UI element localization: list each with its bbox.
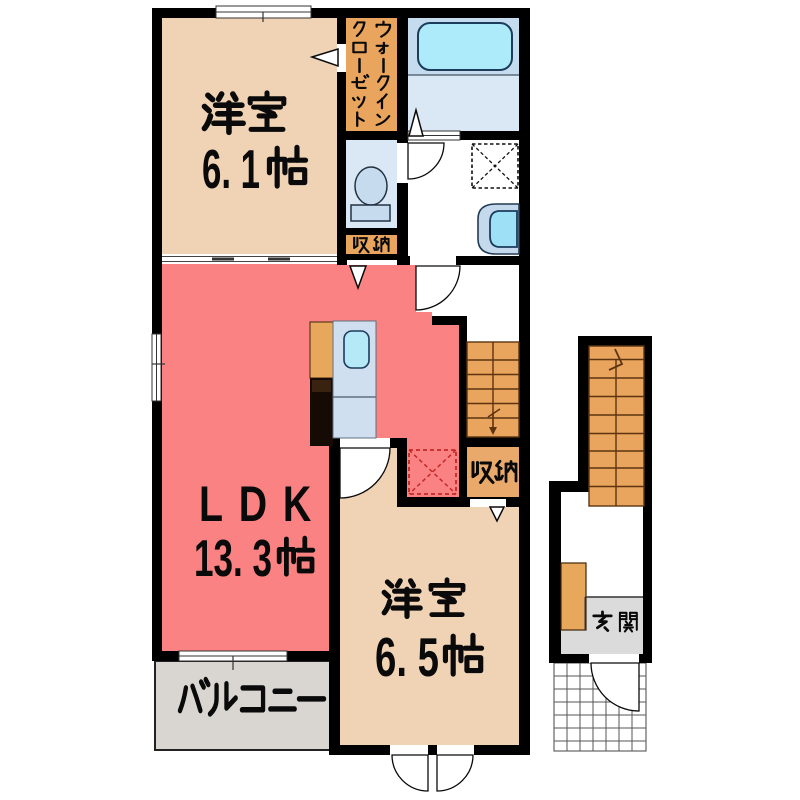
svg-text:6. 5: 6. 5 — [375, 626, 439, 688]
svg-text:13. 3: 13. 3 — [194, 530, 272, 588]
svg-text:LDK: LDK — [199, 476, 327, 532]
svg-text:6. 1: 6. 1 — [202, 138, 260, 200]
